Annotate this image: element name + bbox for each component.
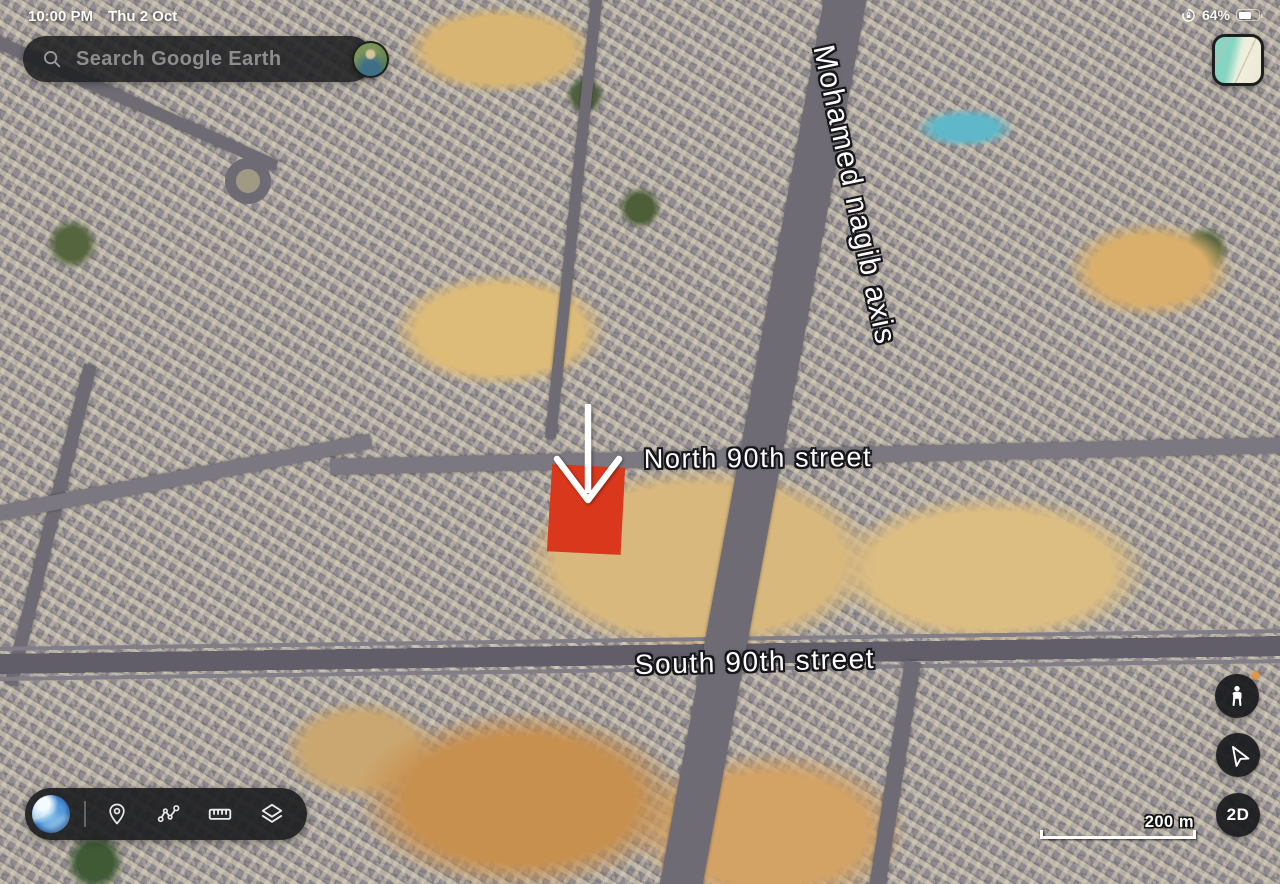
- status-indicators: 64%: [1181, 7, 1260, 23]
- tools-toolbar: [25, 788, 307, 840]
- pegman-icon: [1225, 684, 1249, 708]
- road-right-lower-vertical: [867, 660, 920, 884]
- google-earth-logo-icon[interactable]: [32, 795, 70, 833]
- location-pin-icon: [105, 802, 129, 826]
- rotation-lock-icon: [1181, 8, 1196, 23]
- navigation-compass-button[interactable]: [1216, 733, 1260, 777]
- google-earth-app: North 90th street South 90th street Moha…: [0, 0, 1280, 884]
- measure-button[interactable]: [203, 797, 237, 831]
- status-clock: 10:00 PM Thu 2 Oct: [28, 8, 177, 25]
- path-route-icon: [156, 802, 181, 827]
- street-label-north-90th: North 90th street: [608, 442, 908, 476]
- status-time: 10:00 PM: [28, 8, 93, 25]
- placemark-pin-button[interactable]: [100, 797, 134, 831]
- toolbar-icons: [100, 797, 290, 831]
- draw-path-button[interactable]: [151, 797, 185, 831]
- toolbar-divider: [84, 801, 86, 827]
- battery-icon: [1236, 9, 1260, 21]
- pegman-street-view-button[interactable]: [1215, 674, 1259, 718]
- down-arrow-pointer-icon: [542, 404, 634, 508]
- ruler-icon: [207, 801, 233, 827]
- account-avatar[interactable]: [352, 41, 389, 78]
- layers-button[interactable]: [255, 797, 289, 831]
- satellite-map-canvas[interactable]: [0, 0, 1280, 884]
- road-top-mid-vertical: [545, 0, 603, 439]
- pegman-notification-dot: [1251, 671, 1260, 680]
- battery-percent: 64%: [1202, 7, 1230, 23]
- roundabout: [225, 158, 271, 204]
- search-icon: [41, 48, 63, 70]
- 2d-label: 2D: [1227, 805, 1250, 825]
- navigation-arrow-icon: [1221, 738, 1254, 771]
- status-date: Thu 2 Oct: [108, 8, 177, 25]
- layers-icon: [259, 801, 285, 827]
- map-style-thumbnail-button[interactable]: [1212, 34, 1264, 86]
- search-bar[interactable]: [23, 36, 373, 82]
- road-left-vertical: [4, 363, 96, 686]
- battery-fill-level: [1239, 12, 1251, 19]
- scale-line: [1040, 830, 1196, 839]
- search-input[interactable]: [76, 48, 363, 71]
- 2d-view-toggle-button[interactable]: 2D: [1216, 793, 1260, 837]
